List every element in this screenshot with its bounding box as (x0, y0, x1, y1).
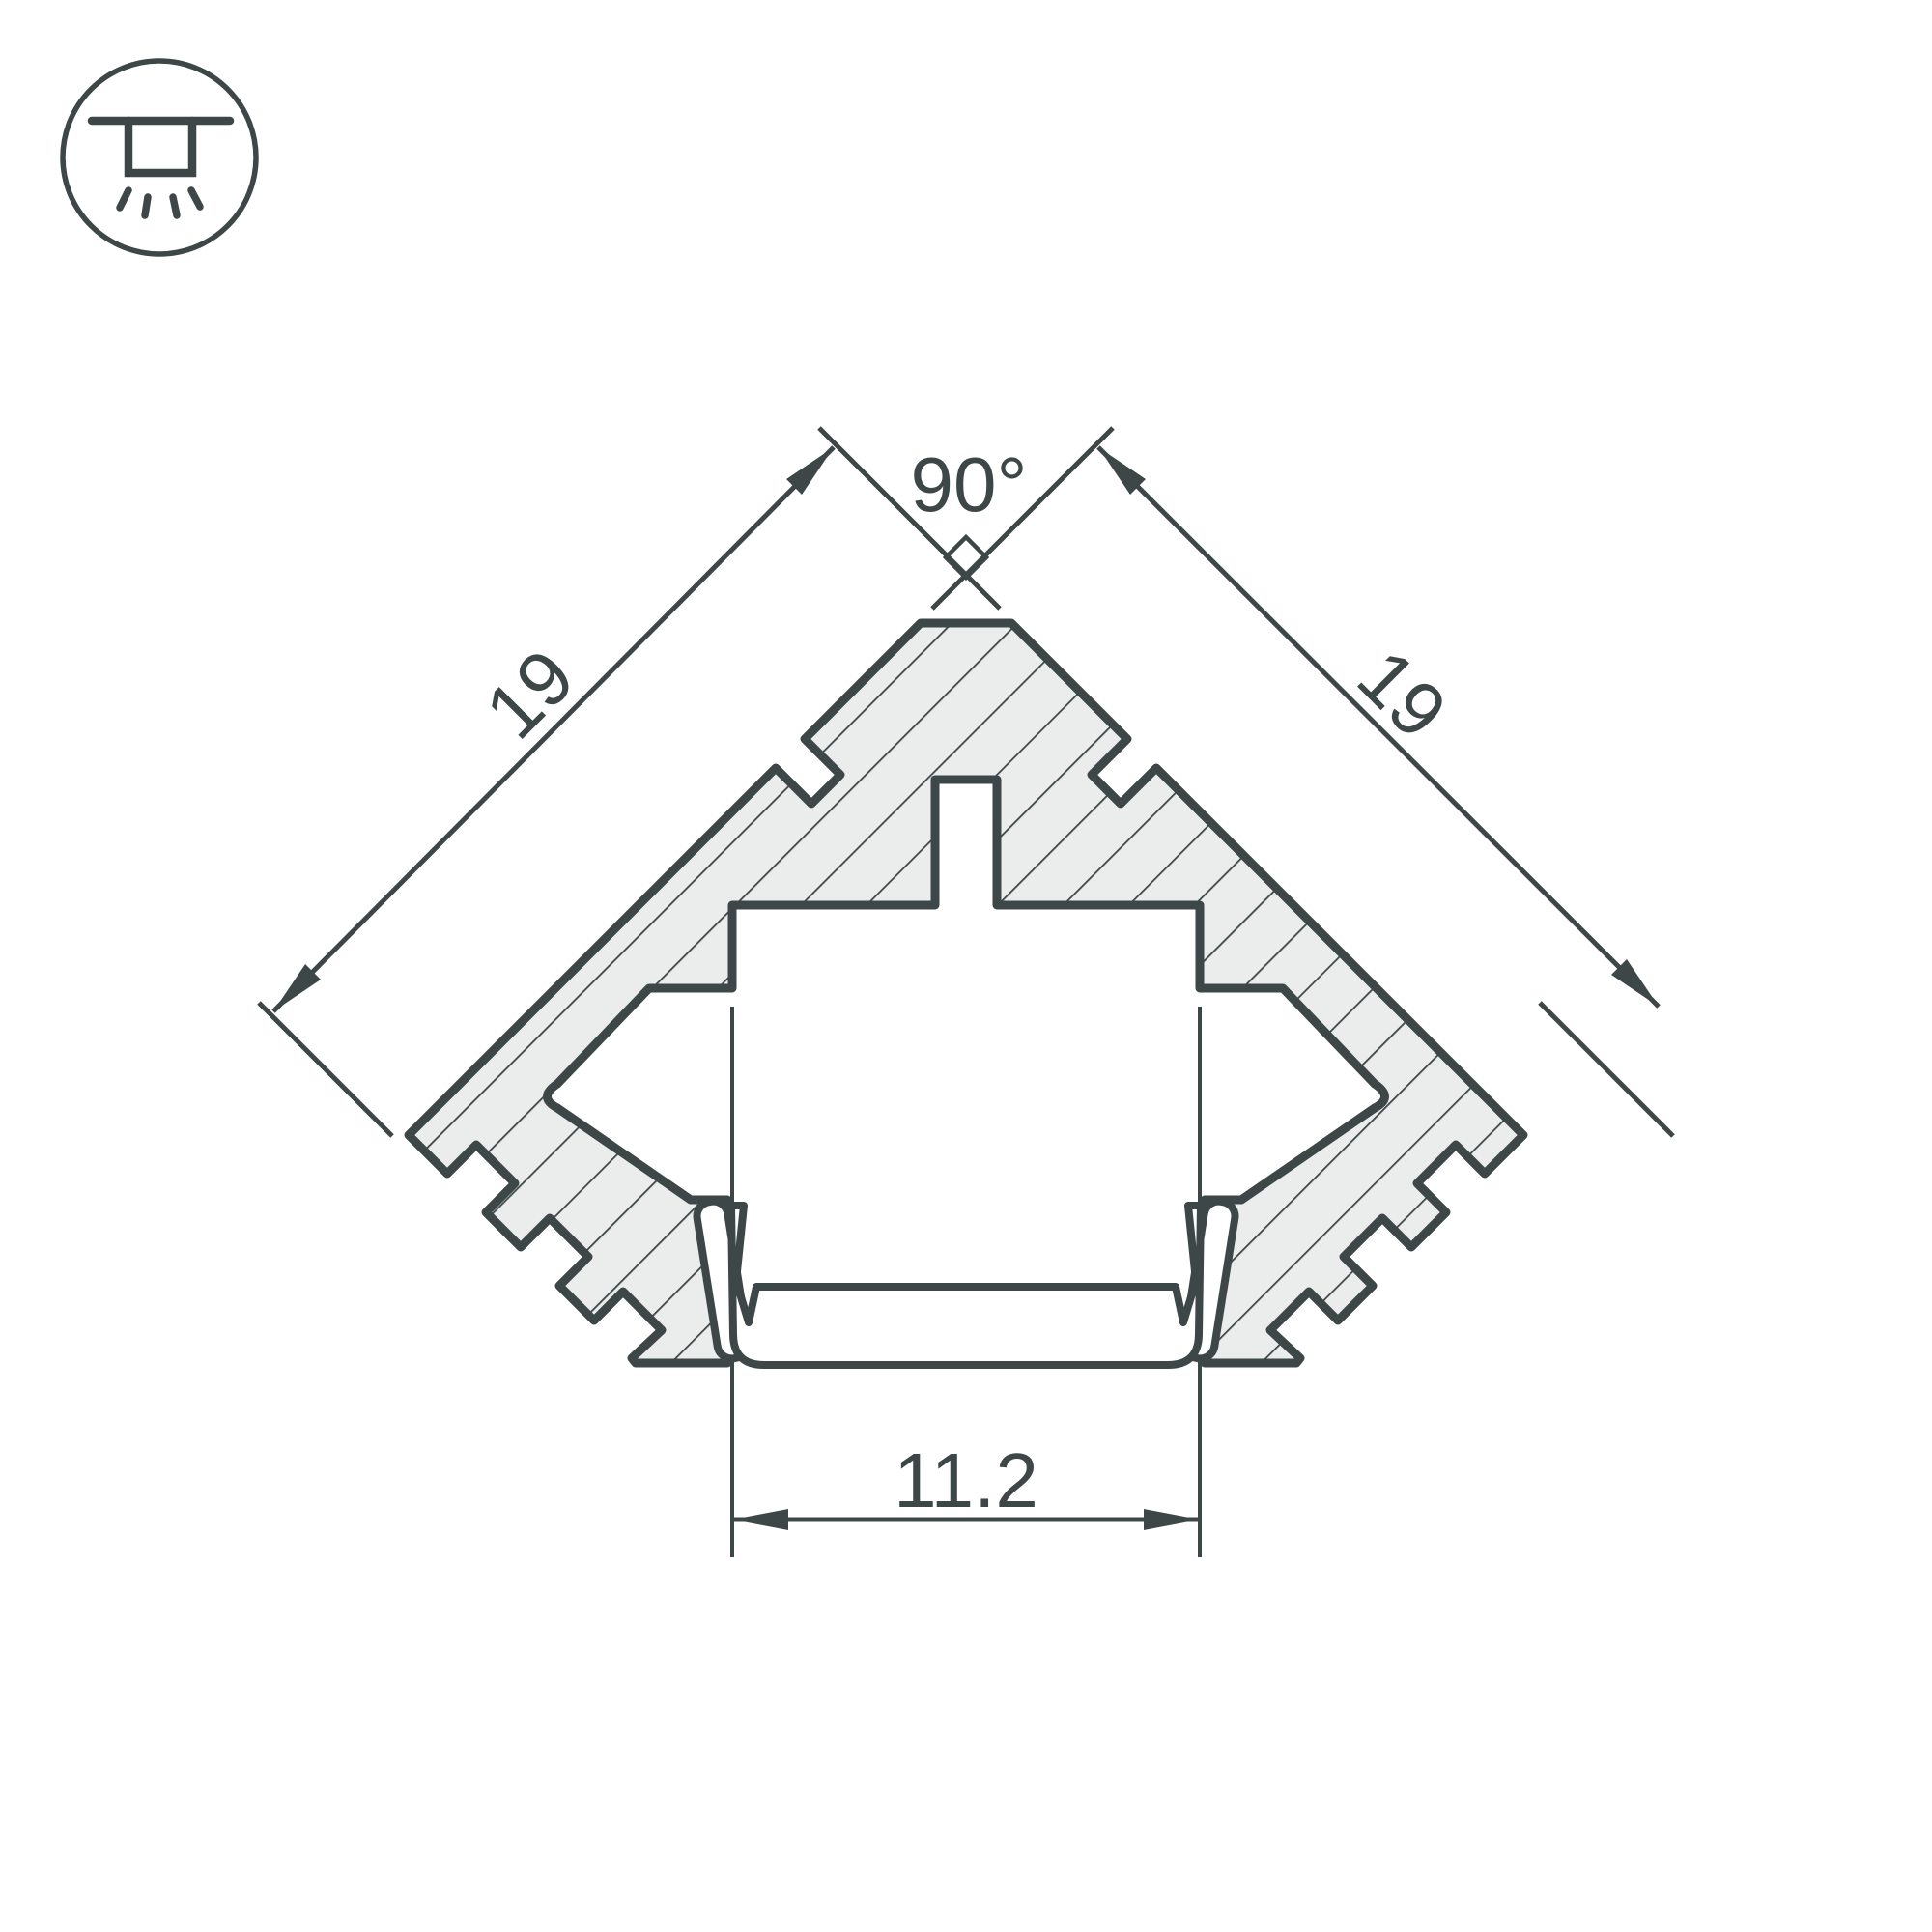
profile-cross-section-diagram: 90° 19 19 11.2 (0, 0, 1932, 1932)
arrowhead-groove-right (1144, 1509, 1200, 1530)
profile-hatching (409, 623, 1523, 1363)
diffuser-cover (731, 1206, 1201, 1365)
extension-tick-left-bottom (259, 1003, 392, 1136)
extension-tick-right-bottom (1540, 1003, 1673, 1136)
aluminium-profile-body (409, 623, 1523, 1363)
icon-circle (63, 61, 256, 254)
groove-width-label: 11.2 (894, 1437, 1038, 1523)
angle-label: 90° (911, 441, 1028, 527)
icon-light-rays (120, 190, 200, 215)
recessed-ceiling-light-icon (63, 61, 256, 254)
diffuser-assembly (695, 1200, 1236, 1365)
side-dimension-label-right: 19 (1342, 633, 1463, 754)
side-dimension-label-left: 19 (469, 633, 590, 754)
drawing-canvas: 90° 19 19 11.2 (0, 0, 1932, 1932)
icon-fixture-box (128, 121, 192, 173)
arrowhead-groove-left (732, 1509, 788, 1530)
